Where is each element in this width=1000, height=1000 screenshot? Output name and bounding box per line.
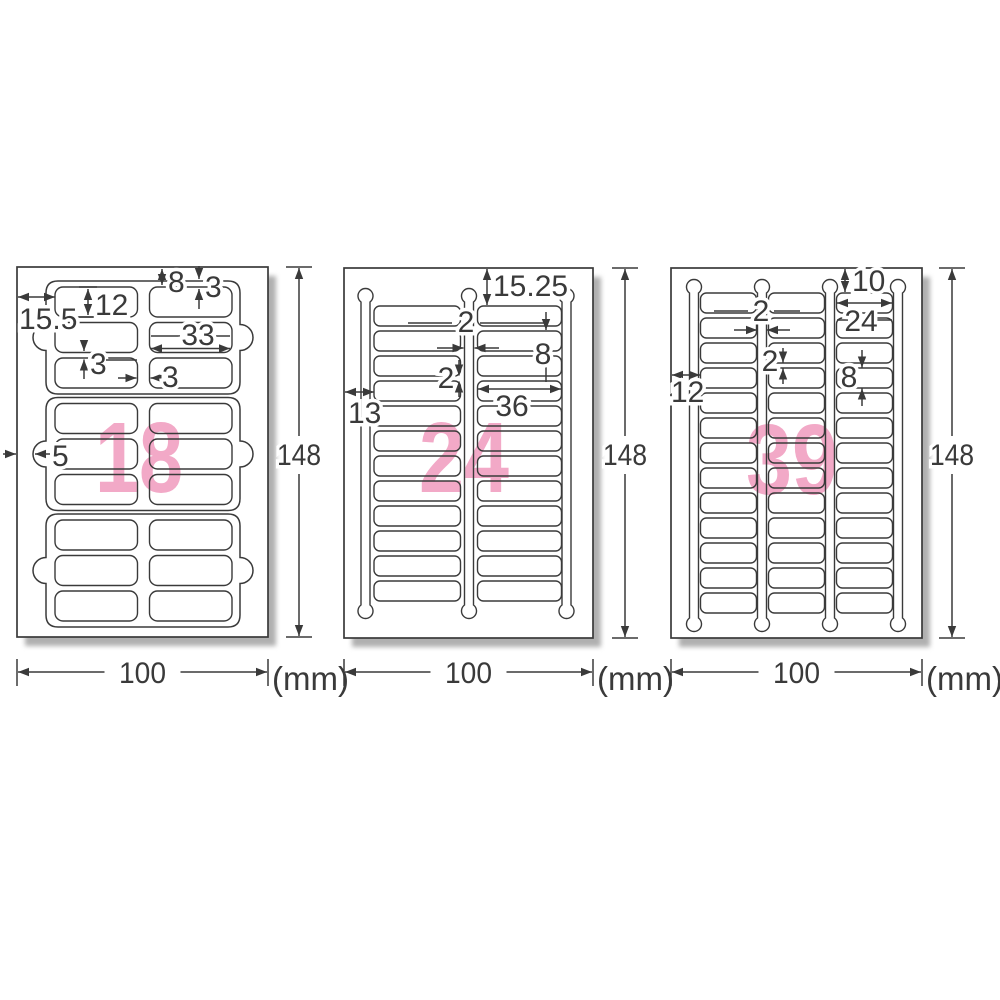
unit-label: (mm) [272,660,349,697]
dim-left-margin: 13 [348,397,381,430]
dim-col-gap: 2 [753,295,770,328]
arrowhead-icon [5,450,16,458]
label-count-number: 18 [95,402,183,514]
dim-label-height: 8 [841,361,858,394]
dim-row-gap: 3 [90,348,107,381]
dim-label-width: 36 [495,390,528,423]
dim-label-width: 24 [844,305,877,338]
sheet-height-dim: 148 [277,439,321,472]
arrowhead-icon [948,269,956,280]
sheet-width-dim: 100 [119,657,166,690]
dim-top-margin: 8 [168,266,185,299]
dim-row-gap: 2 [438,362,455,395]
arrowhead-icon [948,626,956,637]
dim-top-margin: 15.25 [493,270,568,303]
dim-left-margin: 15.5 [19,303,77,336]
label-spec-diagram: 1815.5128333335148100(mm)2415.2528213361… [0,0,1000,1000]
dim-left-margin: 12 [671,376,704,409]
dim-label-height: 12 [95,289,128,322]
sheet-width-dim: 100 [445,657,492,690]
arrowhead-icon [581,668,592,676]
arrowhead-icon [18,668,29,676]
arrowhead-icon [256,668,267,676]
label-spec-diagram-page: 1815.5128333335148100(mm)2415.2528213361… [0,0,1000,1000]
arrowhead-icon [295,268,303,279]
dim-top-margin: 10 [852,265,885,298]
sheet-height-dim: 148 [930,439,974,472]
dim-tab-width: 5 [52,440,69,473]
arrowhead-icon [295,625,303,636]
arrowhead-icon [621,626,629,637]
dim-col-gap: 2 [458,306,475,339]
arrowhead-icon [910,668,921,676]
dim-label-height: 8 [535,338,552,371]
dim-row-gap: 2 [762,345,779,378]
arrowhead-icon [621,269,629,280]
dim-col-gap: 3 [162,361,179,394]
unit-label: (mm) [597,660,674,697]
unit-label: (mm) [926,660,1000,697]
dim-label-width: 33 [181,319,214,352]
dim-edge-gap: 3 [205,271,222,304]
sheet-width-dim: 100 [773,657,820,690]
sheet-height-dim: 148 [603,439,647,472]
